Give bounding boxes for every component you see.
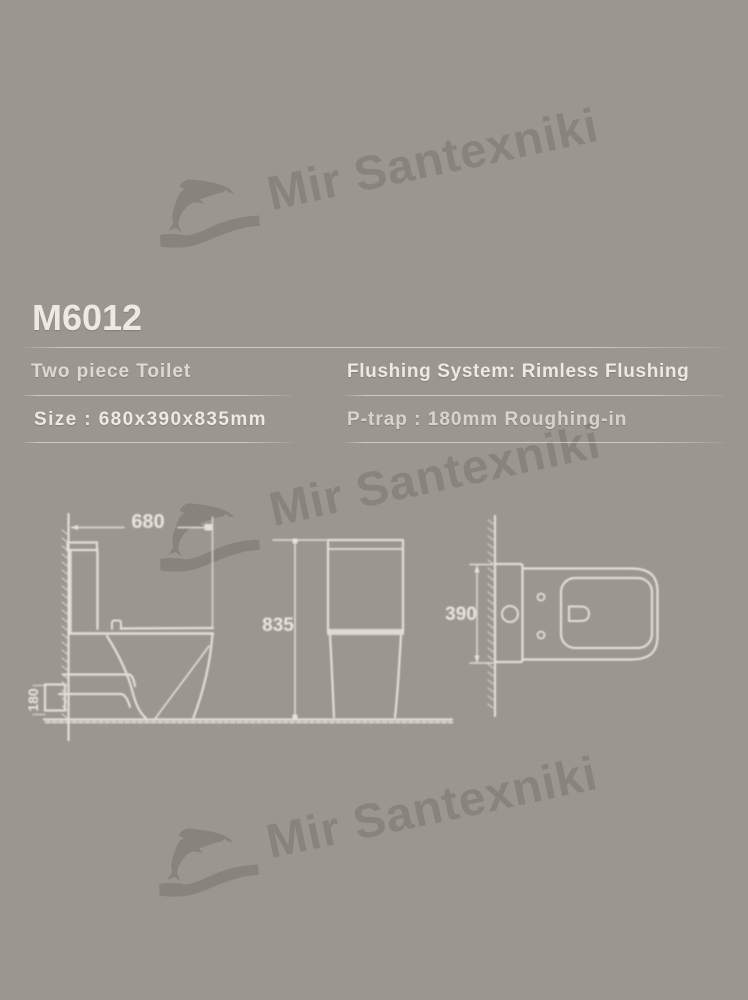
svg-text:835: 835 xyxy=(262,615,294,636)
svg-text:180: 180 xyxy=(25,688,41,712)
svg-text:680: 680 xyxy=(131,511,164,533)
svg-text:390: 390 xyxy=(445,604,477,625)
